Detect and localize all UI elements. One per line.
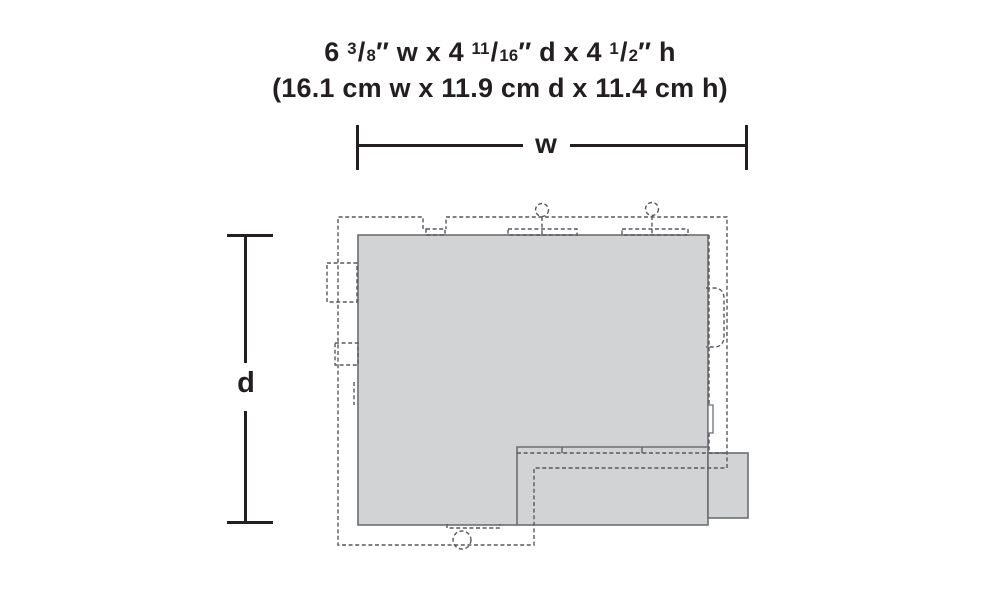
chimney-circle-left: [536, 204, 549, 217]
chimney-connectors-dashed: [542, 216, 652, 235]
right-edge-bracket: [708, 405, 713, 433]
left-protrusion-box-upper: [327, 263, 357, 302]
bottom-circle-detail: [453, 531, 471, 549]
main-footprint-slab: [358, 235, 708, 525]
roof-notch-box-dashed: [426, 229, 445, 235]
top-edge-detail-box-right: [622, 229, 688, 235]
annex-footprint-slab: [708, 453, 748, 518]
footprint-dimension-diagram: 6 3/8″ w x 4 11/16″ d x 4 1/2″ h (16.1 c…: [0, 0, 1000, 591]
footprint-plan-svg: [0, 0, 1000, 591]
chimney-circle-right: [646, 203, 659, 216]
